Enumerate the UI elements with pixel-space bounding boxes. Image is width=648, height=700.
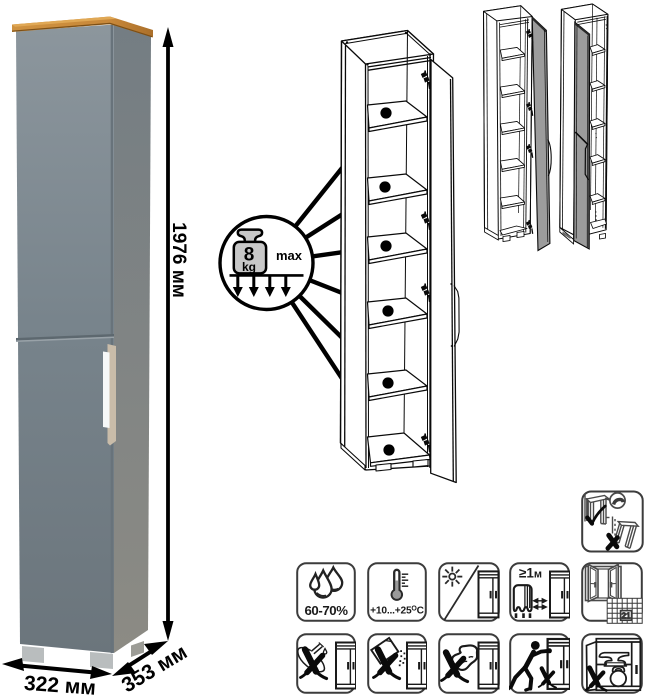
svg-text:60-70%: 60-70% bbox=[304, 603, 348, 618]
svg-text:+10...+25OC: +10...+25OC bbox=[370, 606, 425, 617]
svg-text:kg: kg bbox=[242, 260, 256, 274]
svg-text:322 мм: 322 мм bbox=[23, 672, 96, 700]
svg-text:≥1м: ≥1м bbox=[519, 566, 542, 581]
svg-text:21: 21 bbox=[622, 611, 631, 620]
svg-text:max: max bbox=[276, 248, 303, 263]
